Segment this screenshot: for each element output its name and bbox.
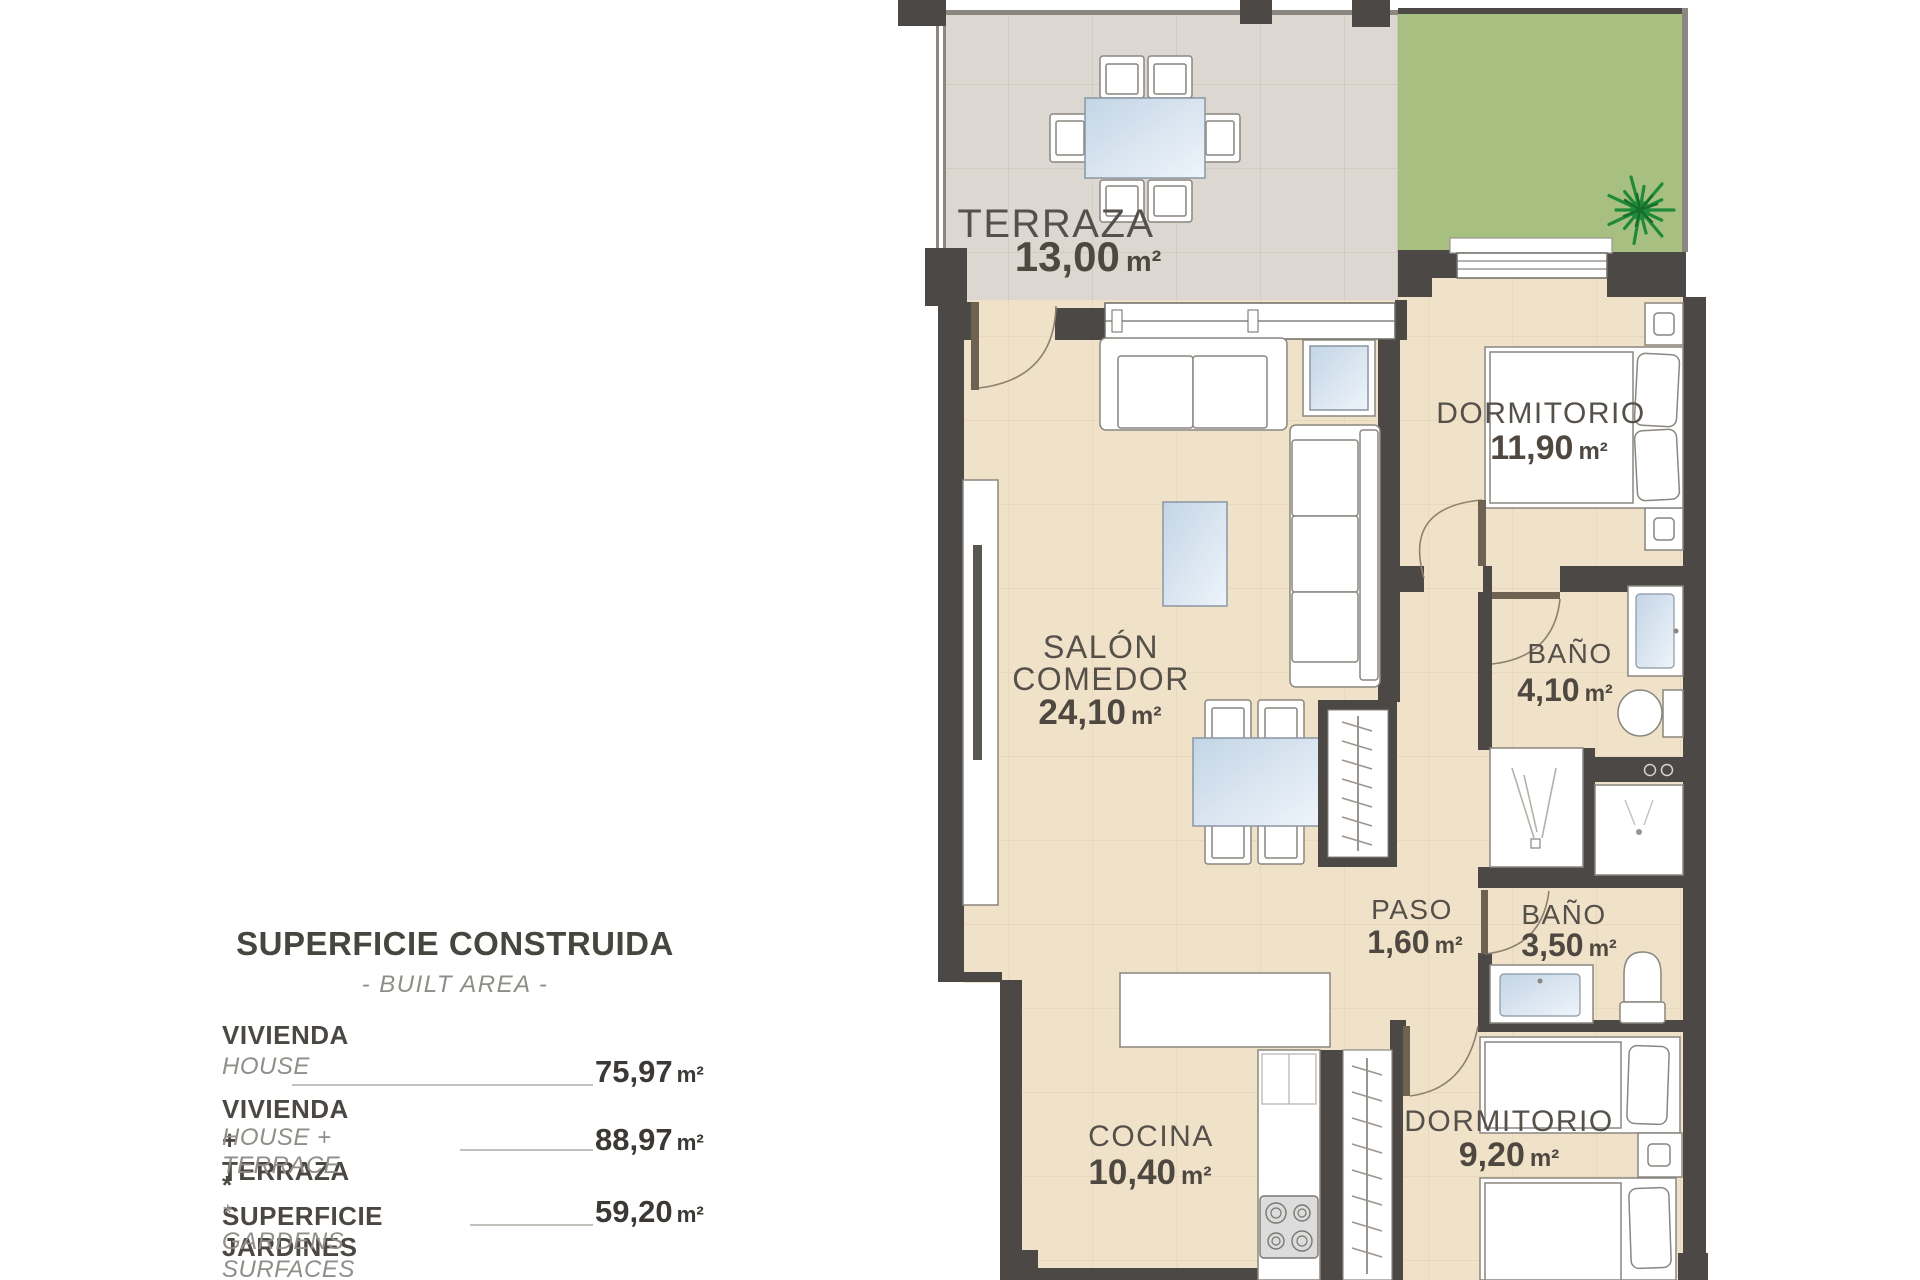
dining-table-icon (1085, 98, 1205, 178)
shower-icon (1595, 785, 1683, 875)
toilet-icon (1618, 690, 1683, 737)
sofa-icon (1290, 425, 1380, 687)
paso-label: PASO (1371, 894, 1453, 925)
kitchen-island-icon (1120, 973, 1330, 1047)
chair-icon (1148, 180, 1192, 222)
chair-icon (1100, 56, 1144, 98)
legend-item-value: 75,97m² (595, 1054, 704, 1090)
leader-line (292, 1084, 593, 1086)
shower-icon (1490, 748, 1583, 867)
nightstand-icon (1645, 303, 1683, 345)
washer-counter-icon (1590, 757, 1683, 782)
side-table-icon (1303, 340, 1375, 416)
pillar-icon (1398, 250, 1432, 297)
single-bed-icon (1480, 1178, 1676, 1280)
bano2-label: BAÑO (1521, 899, 1606, 930)
pillar-icon (1240, 0, 1272, 24)
sink-icon (1628, 586, 1683, 676)
bano1-label: BAÑO (1527, 638, 1612, 669)
legend-item-label-en: * GARDENS SURFACES (222, 1200, 355, 1280)
legend-item-value: 88,97m² (595, 1122, 704, 1158)
salon-label: SALÓN (1043, 629, 1159, 665)
sofa-icon (1100, 338, 1287, 430)
pillar-icon (930, 0, 946, 26)
bedroom-window-icon (1457, 253, 1607, 278)
pillar-icon (925, 248, 967, 306)
coffee-table-icon (1163, 502, 1227, 606)
wardrobe-icon (1318, 700, 1397, 867)
dormitorio2-label: DORMITORIO (1404, 1105, 1613, 1138)
salon-label2: COMEDOR (1012, 661, 1190, 697)
floorplan-page: TERRAZA 13,00m² SALÓN COMEDOR 24,10m² DO… (0, 0, 1920, 1280)
legend-item-label: VIVIENDA (222, 1020, 349, 1051)
nightstand-icon (1638, 1133, 1682, 1177)
wardrobe-icon (1343, 1050, 1392, 1280)
leader-line (470, 1224, 593, 1226)
tv-cabinet-icon (963, 480, 998, 905)
chair-icon (1050, 114, 1090, 162)
cocina-label: COCINA (1088, 1120, 1214, 1153)
outside-mask (760, 983, 1000, 1280)
window-sill (1450, 238, 1612, 253)
legend-item-value: 59,20m² (595, 1194, 704, 1230)
nightstand-icon (1645, 508, 1683, 550)
dining-table-icon (1193, 738, 1320, 826)
pillar-icon (1352, 0, 1390, 27)
leader-line (460, 1149, 593, 1151)
pillar-icon (1678, 1253, 1708, 1280)
chair-icon (1148, 56, 1192, 98)
sliding-door-icon (1105, 303, 1395, 339)
toilet-icon (1620, 952, 1665, 1023)
pillar-icon (898, 0, 932, 26)
legend-title: SUPERFICIE CONSTRUIDA (210, 925, 700, 963)
legend-subtitle: - BUILT AREA - (210, 971, 700, 999)
sink-icon (1490, 965, 1593, 1023)
dormitorio1-label: DORMITORIO (1436, 397, 1645, 430)
stove-icon (1260, 1196, 1318, 1258)
pillar-icon (1002, 1250, 1038, 1280)
chair-icon (1200, 114, 1240, 162)
legend-item-label-en: HOUSE (222, 1053, 310, 1081)
floorplan-drawing: TERRAZA 13,00m² SALÓN COMEDOR 24,10m² DO… (0, 0, 1920, 1280)
